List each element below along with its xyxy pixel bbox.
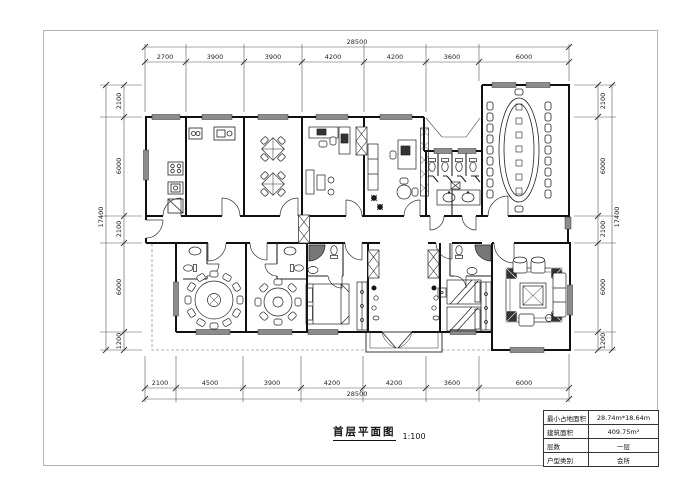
dim-right-seg-5: 1200 (600, 333, 607, 350)
conference-room-furniture (487, 89, 551, 212)
table-row: 户型类别 会所 (544, 452, 658, 466)
office-furniture (306, 127, 367, 195)
dim-top-seg-5: 4200 (387, 54, 404, 61)
info-value-3: 一层 (589, 439, 658, 452)
info-table: 最小占地面积 28.74m*18.64m 建筑面积 409.75m² 层数 一层… (543, 410, 659, 467)
info-label-2: 建筑面积 (544, 425, 589, 438)
dim-bottom-seg-3: 3900 (264, 380, 281, 387)
dim-top-seg-2: 3900 (207, 54, 224, 61)
dim-bottom-seg-2: 4500 (202, 380, 219, 387)
dim-left-seg-4: 6000 (116, 279, 123, 296)
dim-bottom-seg-4: 4200 (324, 380, 341, 387)
info-label-3: 层数 (544, 439, 589, 452)
dim-right-seg-4: 6000 (600, 279, 607, 296)
main-entrance (366, 332, 442, 352)
living-room (506, 257, 566, 326)
kitchen-furniture (168, 127, 235, 213)
dim-left-seg-2: 6000 (116, 158, 123, 175)
info-label-1: 最小占地面积 (544, 411, 589, 424)
washroom-fixtures (421, 128, 481, 205)
table-row: 层数 一层 (544, 438, 658, 452)
title-scale: 1:100 (403, 432, 426, 441)
info-value-4: 会所 (589, 453, 658, 466)
manager-office-furniture (368, 140, 418, 210)
dim-left-seg-3: 2100 (116, 221, 123, 238)
dim-bottom-seg-5: 4200 (386, 380, 403, 387)
dim-bottom-seg-7: 6000 (516, 380, 533, 387)
dim-right-seg-2: 6000 (600, 158, 607, 175)
dim-top-seg-4: 4200 (325, 54, 342, 61)
dim-left-total: 17400 (98, 207, 105, 228)
dim-bottom-seg-6: 3600 (444, 380, 461, 387)
dim-top-seg-6: 3600 (444, 54, 461, 61)
info-label-4: 户型类别 (544, 453, 589, 466)
table-row: 最小占地面积 28.74m*18.64m (544, 411, 658, 424)
info-value-2: 409.75m² (589, 425, 658, 438)
drawing-title: 首层平面图 1:100 (333, 424, 426, 441)
dim-top-seg-7: 6000 (516, 54, 533, 61)
dim-right-seg-3: 2100 (600, 221, 607, 238)
dim-left-seg-1: 2100 (116, 93, 123, 110)
dim-top-total: 28500 (347, 39, 368, 46)
dim-right-seg-1: 2100 (600, 93, 607, 110)
dim-top-seg-3: 3900 (265, 54, 282, 61)
dim-left-seg-5: 1200 (116, 333, 123, 350)
entrance-lobby (368, 250, 439, 320)
dining-room-2 (255, 247, 303, 325)
lightwell-roof (426, 118, 480, 137)
card-room-tables (252, 128, 293, 204)
dim-top-seg-1: 2700 (157, 54, 174, 61)
dim-right-total: 17400 (614, 207, 621, 228)
dim-bottom-seg-1: 2100 (152, 380, 169, 387)
table-row: 建筑面积 409.75m² (544, 424, 658, 438)
title-text: 首层平面图 (333, 424, 396, 441)
corridor-duct (299, 215, 310, 243)
dim-bottom-total: 28500 (347, 391, 368, 398)
info-value-1: 28.74m*18.64m (589, 411, 658, 424)
drawing-sheet: 28500 2700 3900 3900 4200 4200 3600 6000… (0, 0, 700, 494)
bedroom-1 (306, 245, 367, 330)
dining-room-1 (184, 247, 243, 329)
